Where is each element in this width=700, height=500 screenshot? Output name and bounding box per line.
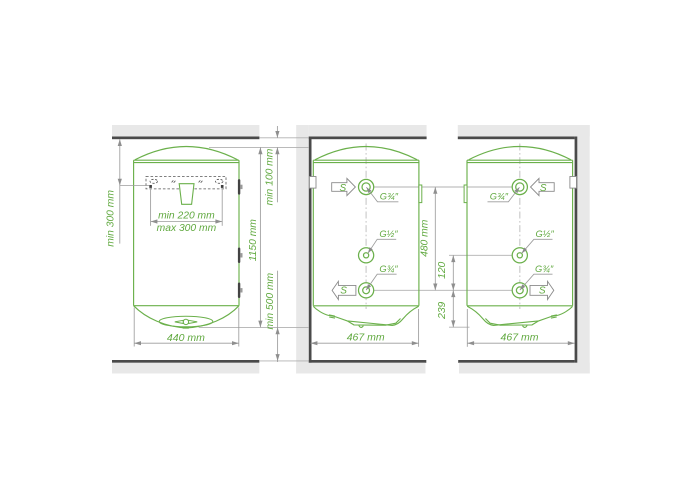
svg-text:min 100 mm: min 100 mm [265,148,276,205]
svg-text:S: S [340,286,347,297]
svg-text:G½″: G½″ [536,229,555,239]
svg-text:467 mm: 467 mm [501,331,539,343]
svg-text:1150 mm: 1150 mm [248,219,259,262]
svg-text:G¾″: G¾″ [379,264,398,274]
svg-text:max 300 mm: max 300 mm [157,223,217,234]
svg-text:467 mm: 467 mm [347,331,385,343]
svg-text:440 mm: 440 mm [167,332,205,344]
svg-text:G¾″: G¾″ [535,264,554,274]
svg-text:480 mm: 480 mm [420,219,431,257]
svg-text:min 500 mm: min 500 mm [265,272,276,329]
svg-text:G½″: G½″ [379,229,398,239]
svg-text:S: S [339,183,346,194]
svg-text:S: S [540,183,547,194]
svg-text:S: S [539,286,546,297]
svg-text:239: 239 [437,301,448,319]
svg-text:G¾″: G¾″ [490,192,509,202]
svg-text:min 220 mm: min 220 mm [158,210,215,221]
svg-text:120: 120 [437,261,448,278]
svg-text:min 300 mm: min 300 mm [105,190,116,247]
svg-text:G¾″: G¾″ [380,192,399,202]
